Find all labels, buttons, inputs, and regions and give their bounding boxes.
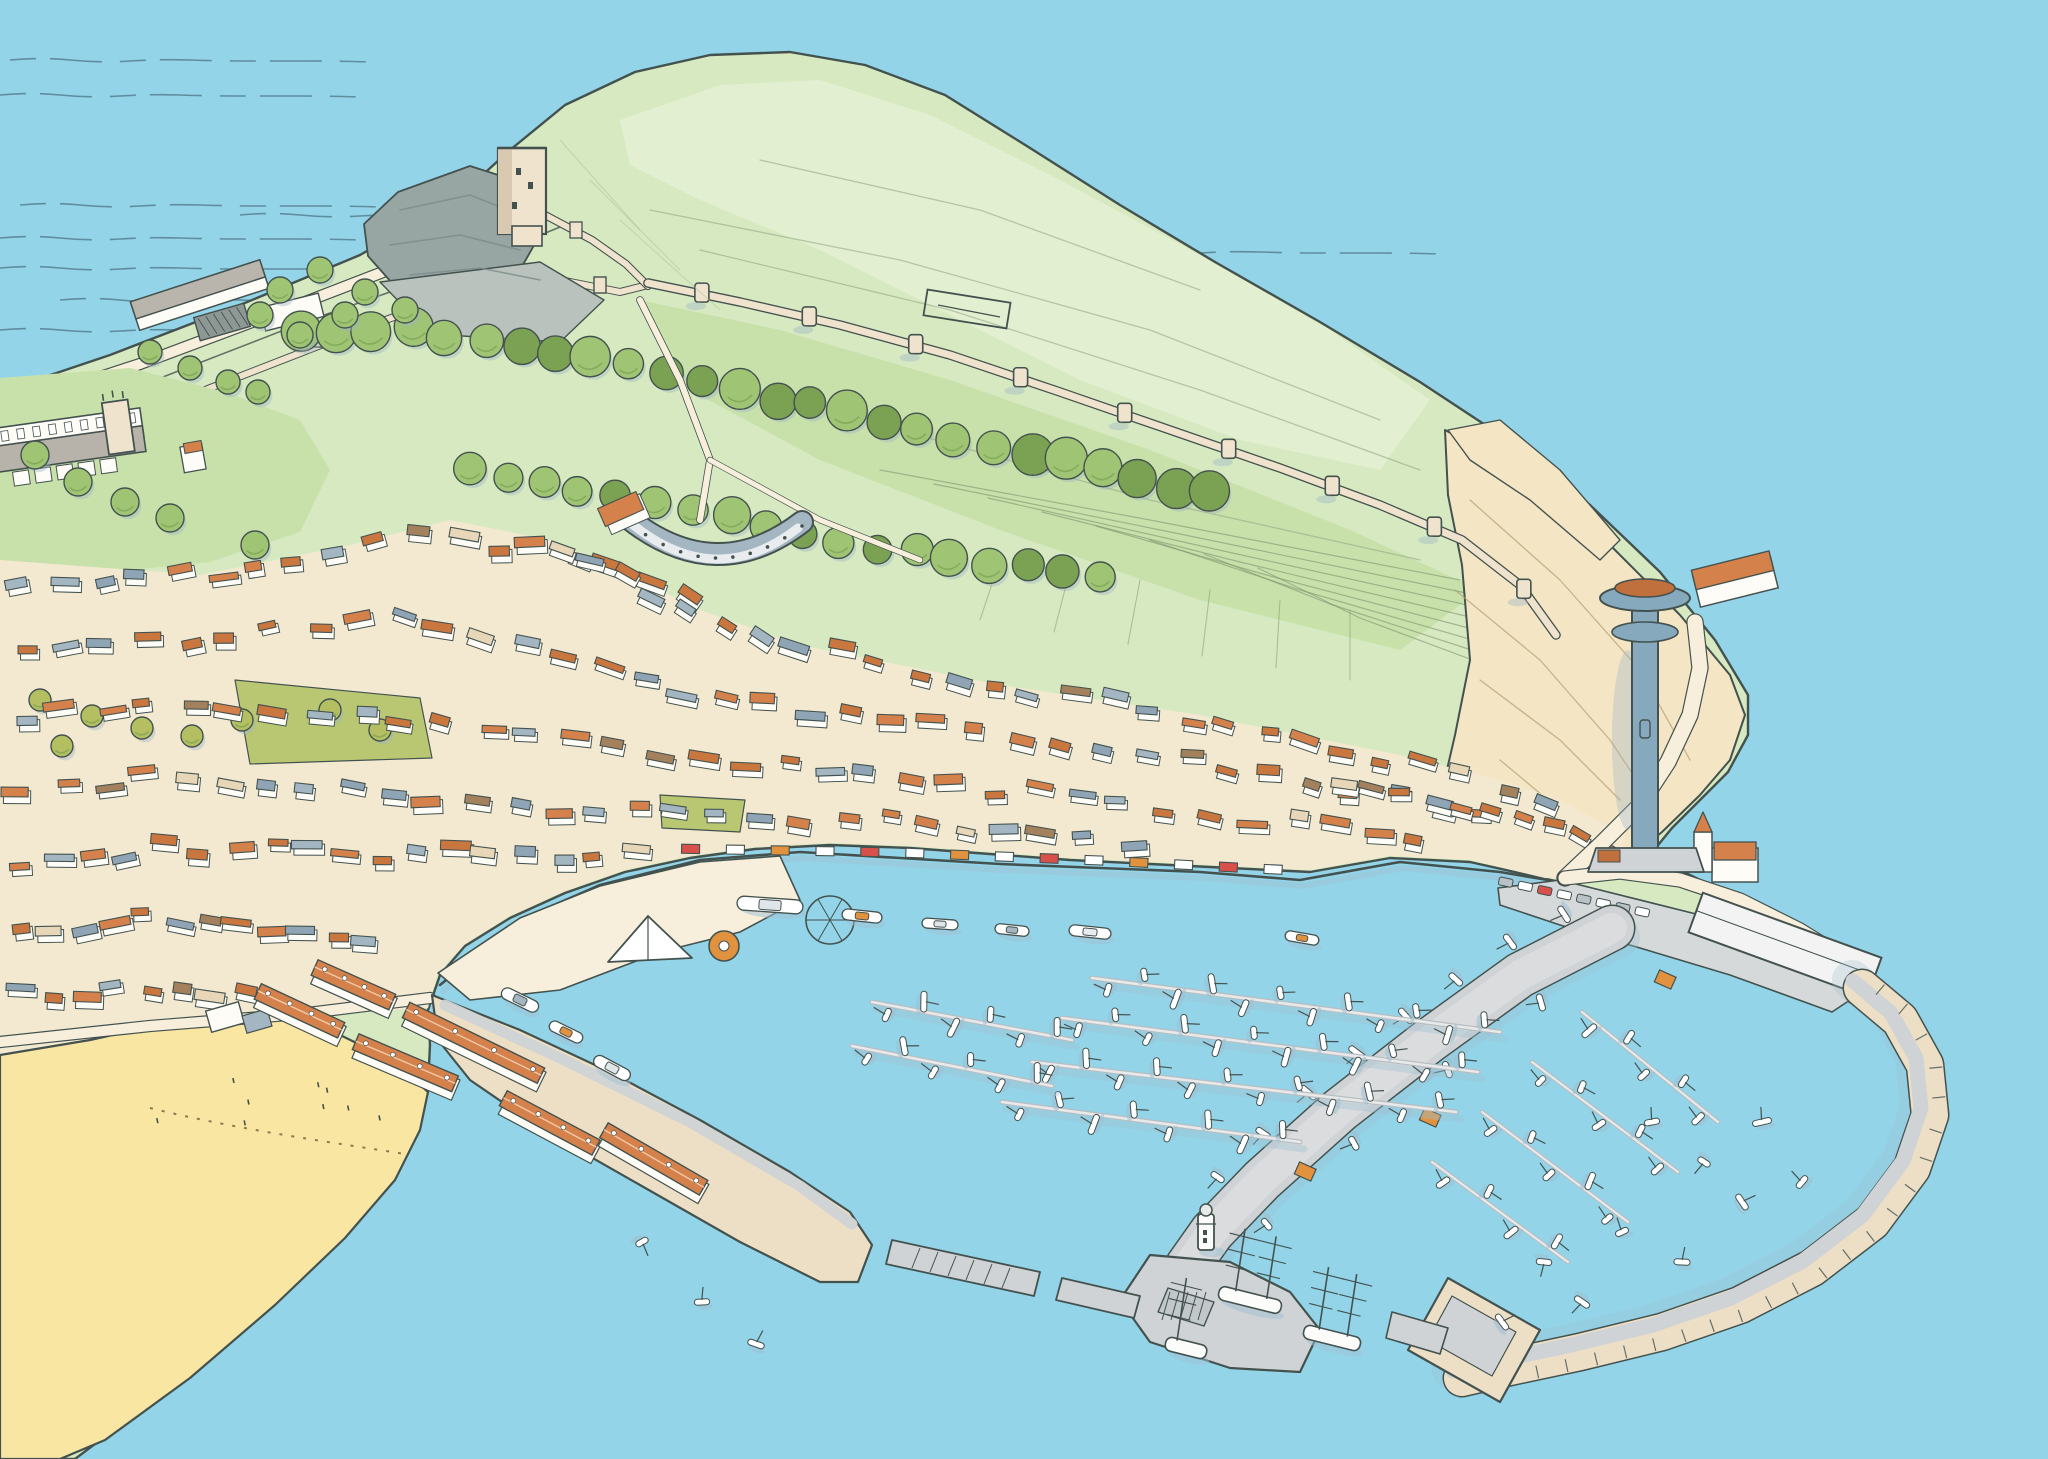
town-house	[186, 849, 210, 868]
town-house	[1389, 788, 1412, 802]
house-roof	[357, 706, 377, 717]
crescent-window	[644, 533, 648, 537]
house-roof	[489, 546, 510, 556]
house-roof	[407, 525, 430, 537]
house-roof	[877, 714, 904, 725]
wall-turret	[594, 277, 606, 293]
house-roof	[512, 728, 535, 736]
house-roof	[9, 862, 29, 871]
town-house	[406, 525, 432, 544]
house-roof	[411, 796, 441, 808]
house-roof	[281, 557, 301, 568]
tower-disc	[1615, 579, 1675, 597]
town-house	[985, 791, 1007, 805]
house-roof	[17, 716, 37, 725]
house-roof	[1365, 828, 1394, 838]
house-roof	[1237, 820, 1268, 829]
town-house	[510, 798, 534, 817]
house-roof	[583, 852, 600, 862]
town-house	[1365, 828, 1397, 845]
tower-shadow	[1418, 536, 1438, 544]
house-roof	[747, 813, 773, 823]
town-house	[17, 716, 40, 732]
wall-tower	[695, 283, 709, 302]
house-roof	[350, 935, 375, 946]
tree	[494, 463, 523, 492]
seafront-awning	[861, 847, 879, 856]
tree	[470, 324, 503, 357]
town-house	[406, 844, 429, 862]
house-roof	[1181, 749, 1204, 758]
town-house	[1181, 749, 1207, 764]
town-house	[184, 701, 211, 716]
tree	[977, 431, 1011, 465]
tower-pinnacle	[112, 391, 113, 398]
tree	[972, 548, 1007, 583]
tree	[247, 302, 273, 328]
beach-figure	[327, 1088, 328, 1093]
town-house	[73, 991, 104, 1009]
tree	[332, 302, 358, 328]
beach-figure	[318, 1082, 319, 1087]
keep-window	[516, 168, 521, 175]
boat-deck	[934, 921, 946, 928]
tower-shadow	[686, 302, 706, 310]
tree	[1189, 471, 1229, 511]
tower-shadow	[1109, 422, 1129, 430]
crescent-window	[748, 552, 752, 556]
town-house	[489, 546, 512, 563]
house-roof	[934, 774, 963, 785]
seafront-awning	[816, 847, 834, 856]
town-house	[1072, 831, 1093, 846]
church-window	[48, 424, 56, 435]
town-house	[307, 710, 336, 726]
town-house	[172, 982, 195, 1002]
house-roof	[294, 783, 313, 794]
boat-deck	[1083, 928, 1098, 936]
keep-window	[528, 182, 533, 189]
art-shape	[1203, 1230, 1207, 1235]
town-house	[285, 926, 317, 941]
house-roof	[730, 762, 760, 772]
house-roof	[795, 710, 825, 721]
tree	[504, 328, 540, 364]
crescent-window	[766, 545, 770, 549]
church-window	[80, 419, 88, 430]
tree	[178, 356, 202, 380]
house-roof	[44, 854, 74, 861]
town-house	[45, 993, 66, 1011]
town-house	[555, 855, 577, 872]
seafront-awning	[1130, 858, 1148, 868]
boat-deck	[1006, 926, 1018, 933]
town-house	[80, 848, 109, 867]
house-roof	[987, 681, 1004, 692]
town-house	[381, 789, 409, 807]
seafront-awning	[995, 852, 1013, 862]
lighthouse-dome	[1200, 1204, 1212, 1216]
house-roof	[45, 993, 63, 1004]
town-house	[795, 710, 828, 728]
boat-deck	[855, 912, 869, 920]
town-house	[1402, 833, 1424, 853]
crescent-window	[696, 554, 700, 558]
town-house	[934, 774, 966, 792]
town-house	[256, 779, 278, 798]
church-window	[1, 430, 9, 441]
castle-keep	[498, 148, 546, 246]
east-church-roof	[1714, 842, 1756, 860]
town-house	[143, 986, 165, 1003]
house-roof	[184, 701, 208, 709]
house-roof	[73, 991, 101, 1002]
house-roof	[51, 577, 79, 586]
tower-shadow	[1005, 387, 1025, 395]
crescent-window	[661, 543, 665, 547]
tower-pinnacle	[103, 394, 104, 401]
bailey-turret	[570, 222, 582, 238]
tree	[901, 413, 933, 445]
town-house	[9, 862, 32, 877]
crescent-window	[679, 550, 683, 554]
town-house	[99, 979, 124, 996]
tree	[570, 336, 610, 376]
town-house	[746, 813, 775, 830]
church-aisle	[100, 458, 118, 474]
tree	[538, 336, 573, 371]
town-house	[330, 849, 361, 865]
town-house	[86, 638, 113, 654]
beach-figure	[233, 1078, 234, 1083]
town-house	[229, 841, 257, 860]
house-roof	[514, 536, 545, 548]
town-house	[582, 807, 607, 823]
beach-figure	[348, 1105, 349, 1110]
town-house	[469, 846, 498, 866]
church-window	[64, 422, 72, 433]
tree	[426, 320, 461, 355]
tower-shadow	[793, 326, 813, 334]
wall-tower	[1325, 476, 1339, 495]
tree	[719, 368, 760, 409]
house-roof	[150, 833, 177, 845]
house-roof	[916, 713, 945, 723]
tree	[1084, 449, 1122, 487]
house-roof	[816, 767, 845, 776]
house-roof	[291, 840, 322, 848]
wall-tower	[1517, 579, 1531, 598]
art-shape	[719, 941, 729, 951]
house-roof	[310, 624, 332, 633]
house-roof	[1, 787, 28, 797]
house-roof	[1072, 831, 1091, 840]
house-roof	[1104, 796, 1125, 804]
house-roof	[440, 840, 471, 851]
house-roof	[257, 926, 286, 937]
tree	[1045, 437, 1087, 479]
town-house	[915, 713, 947, 729]
town-house	[329, 933, 351, 948]
house-roof	[58, 779, 80, 787]
town-house	[621, 843, 653, 861]
house-roof	[229, 842, 254, 854]
house-roof	[176, 772, 199, 785]
church-window	[17, 428, 25, 439]
house-roof	[268, 839, 288, 846]
house-roof	[985, 791, 1004, 799]
tree	[826, 390, 867, 431]
town-house	[135, 632, 164, 648]
house-roof	[1290, 809, 1309, 822]
town-house	[989, 824, 1021, 842]
town-house	[35, 926, 64, 943]
tree	[936, 423, 970, 457]
town-house	[1104, 796, 1127, 810]
tower-collar	[1612, 622, 1678, 642]
tree	[64, 468, 92, 496]
town-house	[350, 935, 378, 953]
wall-tower	[802, 307, 816, 326]
town-house	[749, 692, 777, 711]
tower-shadow	[900, 354, 920, 362]
town-house	[1261, 727, 1281, 743]
tree	[111, 488, 139, 516]
town-house	[123, 569, 146, 586]
boat-deck	[1296, 934, 1308, 942]
town-house	[1330, 778, 1360, 797]
town-house	[214, 633, 236, 650]
house-roof	[12, 923, 30, 935]
house-roof	[382, 789, 407, 801]
town-house	[546, 809, 575, 826]
town-house	[268, 839, 290, 852]
harbour-town-illustration	[0, 0, 2048, 1459]
town-house	[785, 816, 812, 837]
house-roof	[132, 698, 150, 708]
town-house	[58, 779, 83, 793]
seafront-awning	[1085, 855, 1103, 865]
town-house	[131, 908, 151, 922]
town-house	[1498, 785, 1521, 806]
house-roof	[781, 755, 800, 764]
wall-tower	[1118, 403, 1132, 422]
tree	[613, 349, 643, 379]
house-roof	[1257, 764, 1280, 775]
house-roof	[173, 982, 192, 995]
house-roof	[214, 633, 234, 643]
house-roof	[307, 710, 333, 720]
house-roof	[583, 807, 605, 817]
tree	[241, 531, 269, 559]
wall-tower	[1014, 368, 1028, 387]
town-house	[150, 833, 180, 852]
tower-shadow	[1508, 598, 1528, 606]
crescent-window	[783, 536, 787, 540]
town-house	[877, 714, 907, 732]
town-house	[1152, 808, 1176, 825]
house-roof	[86, 638, 111, 647]
tree	[454, 452, 487, 485]
town-house	[514, 536, 548, 555]
crescent-window	[731, 555, 735, 559]
tree	[392, 297, 418, 323]
town-house	[986, 681, 1006, 699]
town-house	[630, 801, 652, 817]
house-roof	[329, 933, 348, 942]
house-roof	[705, 809, 724, 817]
beach-figure	[244, 1120, 245, 1125]
art-shape	[1203, 1238, 1207, 1243]
tree	[287, 322, 313, 348]
tree	[562, 477, 592, 507]
town-house	[560, 729, 592, 748]
tree	[867, 405, 901, 439]
town-house	[281, 556, 304, 573]
town-house	[291, 840, 324, 855]
wall-tower	[1427, 517, 1441, 536]
tree	[216, 370, 240, 394]
town-house	[512, 728, 538, 742]
seafront-awning	[726, 845, 744, 854]
house-roof	[6, 983, 35, 992]
town-house	[780, 755, 802, 771]
house-roof	[18, 646, 37, 654]
seafront-awning	[1264, 864, 1282, 874]
tree	[760, 383, 796, 419]
church-window	[96, 417, 104, 428]
house-roof	[515, 846, 536, 857]
town-house	[51, 577, 82, 592]
house-roof	[1389, 788, 1410, 796]
town-house	[175, 772, 201, 792]
seafront-awning	[906, 848, 924, 858]
house-roof	[750, 692, 775, 704]
town-house	[881, 809, 902, 825]
house-roof	[555, 855, 574, 865]
town-house	[1237, 820, 1271, 835]
keep-shade	[498, 148, 512, 234]
town-house	[373, 856, 394, 871]
tree	[267, 277, 293, 303]
town-house	[1121, 841, 1150, 858]
town-house	[464, 794, 493, 813]
town-house	[964, 722, 985, 741]
house-roof	[373, 856, 391, 864]
house-roof	[131, 908, 149, 916]
town-house	[310, 624, 334, 639]
house-roof	[186, 849, 207, 861]
tree	[246, 380, 270, 404]
house-roof	[123, 569, 144, 579]
boat-deck	[759, 899, 782, 911]
tower-pinnacle	[122, 391, 123, 398]
seafront-awning	[1174, 860, 1192, 870]
house-roof	[852, 764, 874, 776]
house-roof	[839, 813, 860, 824]
tree	[352, 279, 378, 305]
town-house	[1256, 764, 1282, 783]
tower-shadow	[1316, 495, 1336, 503]
town-house	[730, 762, 763, 778]
house-roof	[1136, 706, 1158, 715]
house-roof	[407, 844, 426, 856]
town-house	[128, 764, 159, 781]
house-roof	[135, 632, 161, 641]
seafront-awning	[1040, 854, 1058, 864]
house-roof	[1121, 841, 1147, 852]
house-roof	[257, 779, 276, 791]
house-roof	[244, 560, 262, 572]
house-roof	[35, 926, 61, 936]
wall-tower	[1222, 439, 1236, 458]
tree	[1046, 555, 1079, 588]
beach-figure	[157, 1118, 158, 1123]
crescent-window	[800, 524, 804, 528]
town-house	[838, 813, 862, 831]
seafront-awning	[1219, 862, 1237, 872]
house-roof	[546, 809, 572, 819]
tree	[687, 366, 718, 397]
seafront-awning	[681, 844, 699, 853]
tower-base-hut	[1598, 850, 1620, 862]
town-house	[6, 983, 38, 998]
town-house	[357, 706, 380, 724]
tree	[714, 497, 751, 534]
tree	[307, 257, 333, 283]
tree	[1012, 549, 1044, 581]
town-house	[293, 783, 316, 801]
tree	[156, 504, 184, 532]
tree	[1085, 562, 1115, 592]
crescent-window	[714, 556, 718, 560]
seafront-awning	[950, 850, 968, 860]
town-house	[1, 787, 31, 804]
town-house	[1289, 809, 1312, 829]
keep-window	[512, 202, 517, 209]
town-house	[816, 767, 848, 782]
town-house	[851, 764, 876, 783]
keep-forebuilding	[512, 226, 542, 246]
tree	[529, 467, 560, 498]
harbour-town-map	[0, 0, 2048, 1459]
tree	[794, 387, 825, 418]
town-house	[440, 840, 474, 857]
house-roof	[989, 824, 1018, 835]
town-house	[257, 926, 288, 943]
town-house	[482, 725, 509, 739]
church-window	[32, 426, 40, 437]
beach-figure	[248, 1100, 249, 1105]
town-house	[18, 646, 40, 660]
beach-figure	[379, 1115, 380, 1120]
tree	[930, 539, 967, 576]
house-roof	[482, 725, 507, 733]
house-roof	[964, 722, 982, 734]
house-roof	[285, 926, 314, 935]
tree	[21, 441, 49, 469]
tree	[1118, 460, 1156, 498]
town-house	[411, 796, 443, 815]
town-house	[44, 854, 76, 867]
town-house	[514, 846, 538, 865]
house-roof	[1262, 727, 1279, 736]
wall-tower	[909, 335, 923, 354]
beach-figure	[323, 1104, 324, 1109]
tree	[138, 340, 162, 364]
house-roof	[630, 801, 649, 810]
church-aisle	[13, 470, 31, 486]
